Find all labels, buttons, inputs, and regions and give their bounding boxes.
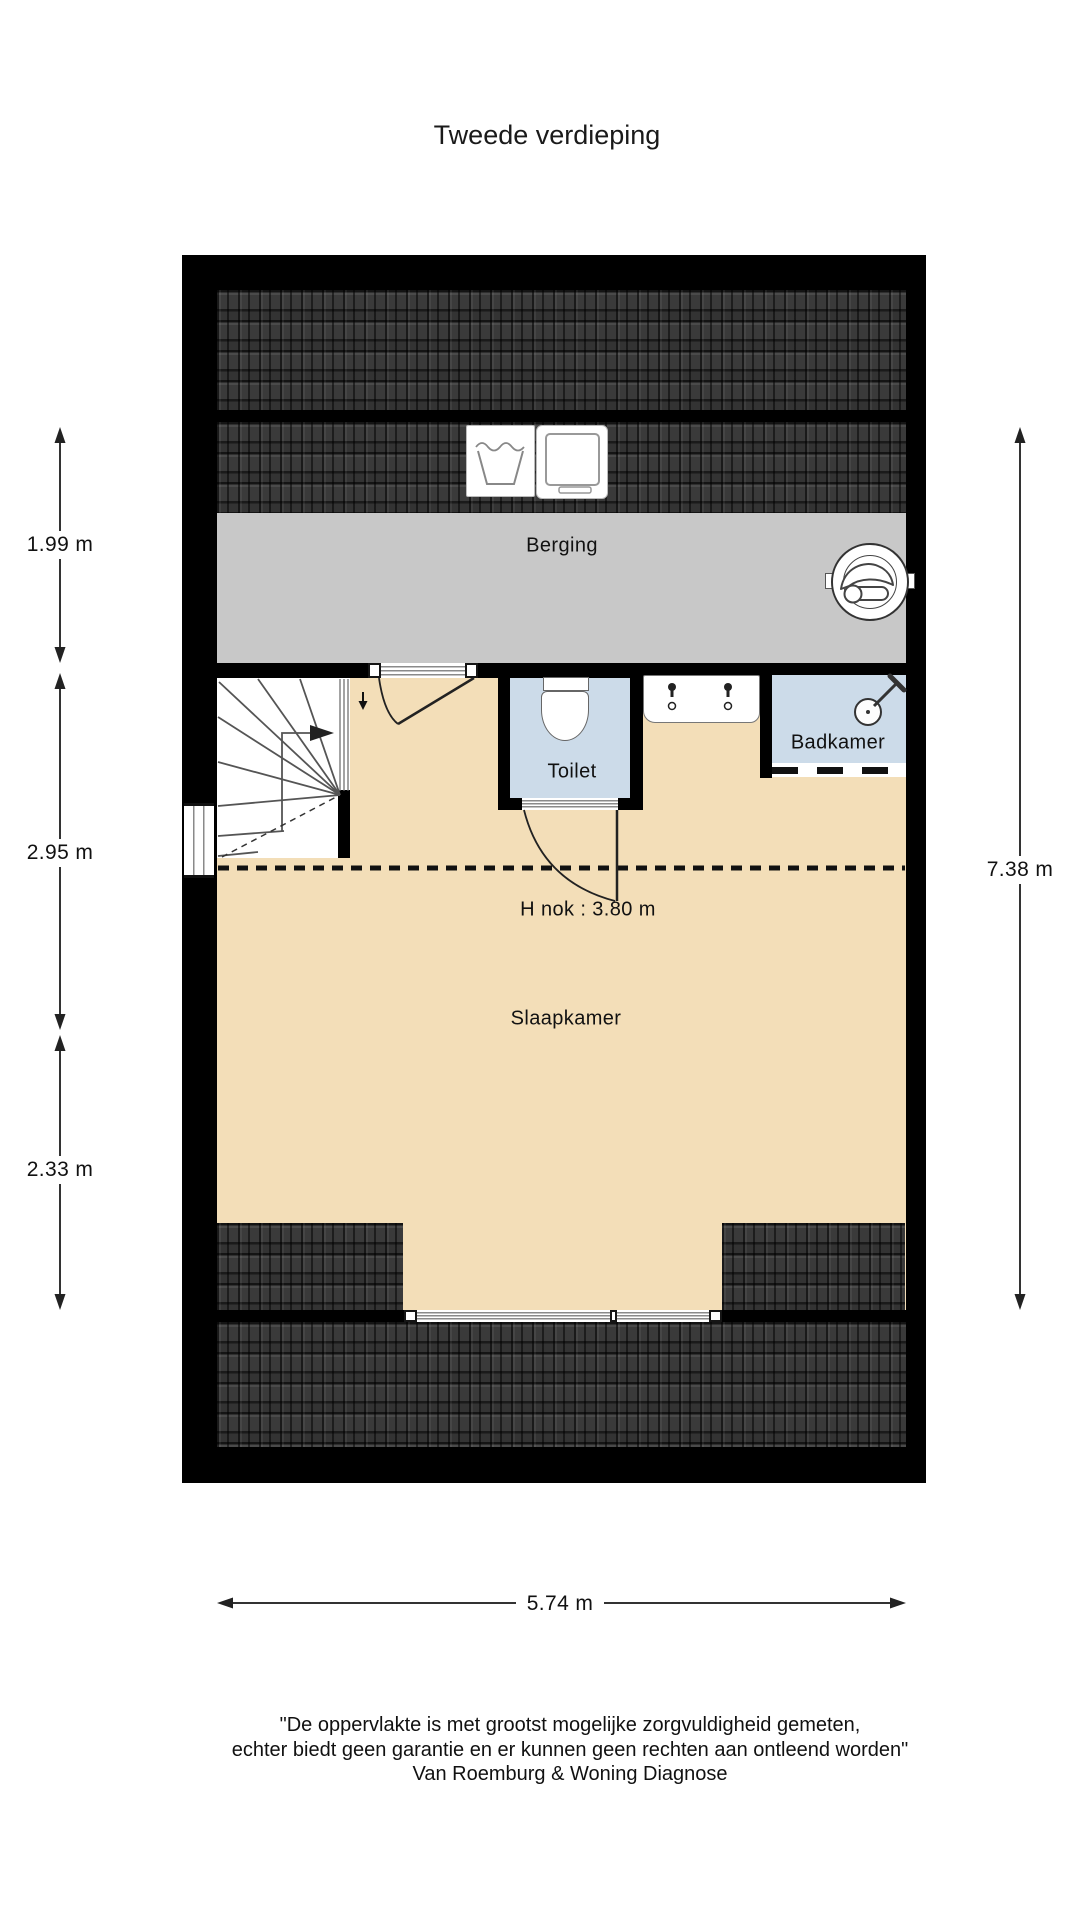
handwash-tub-icon (466, 425, 535, 497)
room-label-berging: Berging (526, 535, 598, 558)
floorplan-page: Tweede verdieping (0, 0, 1080, 1920)
roof-band-bottom (217, 1322, 906, 1447)
dimension-label-bottom: 5.74 m (527, 1592, 594, 1616)
toilet-cistern (543, 677, 589, 691)
left-wall-window (184, 803, 214, 878)
vent-unit-inner-ring (843, 555, 897, 609)
disclaimer: "De oppervlakte is met grootst mogelijke… (90, 1713, 1050, 1787)
badkamer-wall-left (760, 663, 772, 778)
roof-band-top (217, 290, 906, 410)
berging-door-cap-left (368, 663, 381, 678)
toilet-wall-stub-right (618, 798, 643, 810)
stairs-area (217, 678, 350, 858)
page-title: Tweede verdieping (175, 120, 919, 151)
room-label-badkamer: Badkamer (791, 732, 885, 755)
disclaimer-line-1: "De oppervlakte is met grootst mogelijke… (90, 1713, 1050, 1738)
toilet-door-opening (522, 798, 618, 810)
washing-machine-icon (536, 425, 608, 499)
stairwell-wall-stub (338, 790, 350, 858)
berging-door-cap-right (465, 663, 478, 678)
dimension-label-left-1: 1.99 m (27, 533, 94, 557)
toilet-wall-right (630, 663, 643, 810)
badkamer-threshold (772, 763, 906, 777)
bottom-window-cap-left (404, 1310, 417, 1322)
ridge-height-note: H nok : 3.80 m (520, 899, 656, 922)
toilet-wall-stub-left (498, 798, 522, 810)
room-label-slaapkamer: Slaapkamer (511, 1008, 622, 1031)
toilet-wall-left (498, 663, 510, 810)
dimension-label-left-3: 2.33 m (27, 1158, 94, 1182)
bottom-window-cap-right (709, 1310, 722, 1322)
roof-band-lower-left (217, 1223, 403, 1310)
dimension-label-left-2: 2.95 m (27, 841, 94, 865)
disclaimer-line-2: echter biedt geen garantie en er kunnen … (90, 1738, 1050, 1763)
room-label-toilet: Toilet (547, 761, 596, 784)
dimension-label-right: 7.38 m (987, 858, 1054, 882)
roof-band-lower-right (722, 1223, 905, 1310)
floorplan-canvas: Berging Toilet Badkamer Slaapkamer H nok… (182, 255, 926, 1483)
sink-counter (643, 675, 760, 723)
berging-door-opening (368, 663, 478, 678)
bottom-window (404, 1310, 722, 1322)
bottom-window-divider (610, 1310, 617, 1322)
disclaimer-line-3: Van Roemburg & Woning Diagnose (90, 1762, 1050, 1787)
